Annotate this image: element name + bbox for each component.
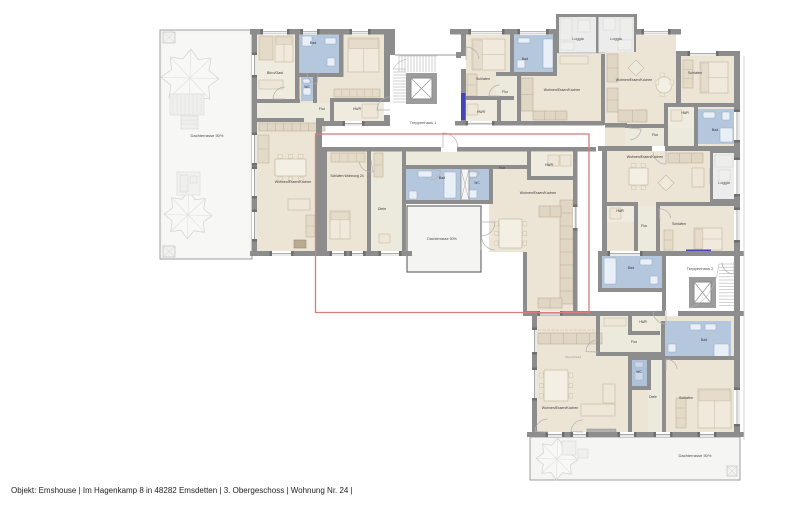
svg-text:Dachterrasse 50%: Dachterrasse 50% [191, 133, 224, 138]
svg-text:Schlafen: Schlafen [672, 222, 686, 226]
svg-text:Wohnen/Essen/Kochen: Wohnen/Essen/Kochen [616, 78, 653, 82]
svg-text:Flur: Flur [319, 107, 326, 111]
svg-text:HWR: HWR [616, 209, 624, 213]
svg-text:Schlafen: Schlafen [679, 396, 693, 400]
svg-text:Treppenhaus 1: Treppenhaus 1 [410, 120, 438, 125]
svg-text:Schlafen: Schlafen [476, 77, 490, 81]
svg-text:HWR: HWR [545, 163, 554, 167]
svg-text:HWR: HWR [681, 111, 689, 115]
svg-text:Bad: Bad [712, 128, 718, 132]
svg-text:HWR: HWR [477, 110, 486, 114]
svg-text:Wohnen/Essen/Kochen: Wohnen/Essen/Kochen [544, 88, 581, 92]
svg-text:WC: WC [304, 85, 310, 89]
svg-text:Bad: Bad [522, 57, 528, 61]
svg-text:Loggia: Loggia [610, 37, 622, 41]
svg-text:HWR: HWR [639, 320, 647, 324]
svg-text:Flur: Flur [641, 224, 648, 228]
svg-text:Bad: Bad [701, 338, 707, 342]
svg-text:Bad: Bad [628, 266, 634, 270]
svg-text:WC: WC [636, 370, 642, 374]
svg-text:Oberschränke: Oberschränke [565, 355, 582, 359]
svg-text:Bad: Bad [439, 176, 445, 180]
svg-text:Diele: Diele [649, 395, 657, 399]
svg-text:Wohnen/Essen/Kochen: Wohnen/Essen/Kochen [275, 180, 312, 184]
svg-text:Wohnen/Essen/Kochen: Wohnen/Essen/Kochen [627, 155, 664, 159]
svg-text:WC: WC [474, 181, 480, 185]
svg-text:Diele: Diele [378, 207, 386, 211]
svg-text:Schlafen Wohnung 24: Schlafen Wohnung 24 [330, 174, 363, 178]
svg-text:Wohnen/Essen/Kochen: Wohnen/Essen/Kochen [542, 406, 579, 410]
svg-text:Treppenhaus 2: Treppenhaus 2 [687, 266, 715, 271]
svg-text:Wohnen/Essen/Kochen: Wohnen/Essen/Kochen [520, 191, 557, 195]
svg-text:Flur: Flur [652, 133, 659, 137]
svg-text:Loggia: Loggia [572, 37, 584, 41]
svg-text:Flur: Flur [502, 90, 509, 94]
svg-text:Flur: Flur [499, 166, 506, 170]
svg-text:Schlafen: Schlafen [688, 71, 702, 75]
svg-text:Loggia: Loggia [718, 181, 730, 185]
svg-text:Objekt: Emshouse | Im Hagenkam: Objekt: Emshouse | Im Hagenkamp 8 in 482… [11, 486, 353, 495]
svg-text:Büro/Gast: Büro/Gast [267, 71, 283, 75]
svg-text:Bad: Bad [310, 41, 316, 45]
svg-text:Flur: Flur [631, 340, 638, 344]
svg-text:Dachterrasse 50%: Dachterrasse 50% [427, 237, 457, 241]
svg-text:HWR: HWR [353, 107, 362, 111]
svg-text:Dachterrasse 50%: Dachterrasse 50% [679, 453, 712, 458]
